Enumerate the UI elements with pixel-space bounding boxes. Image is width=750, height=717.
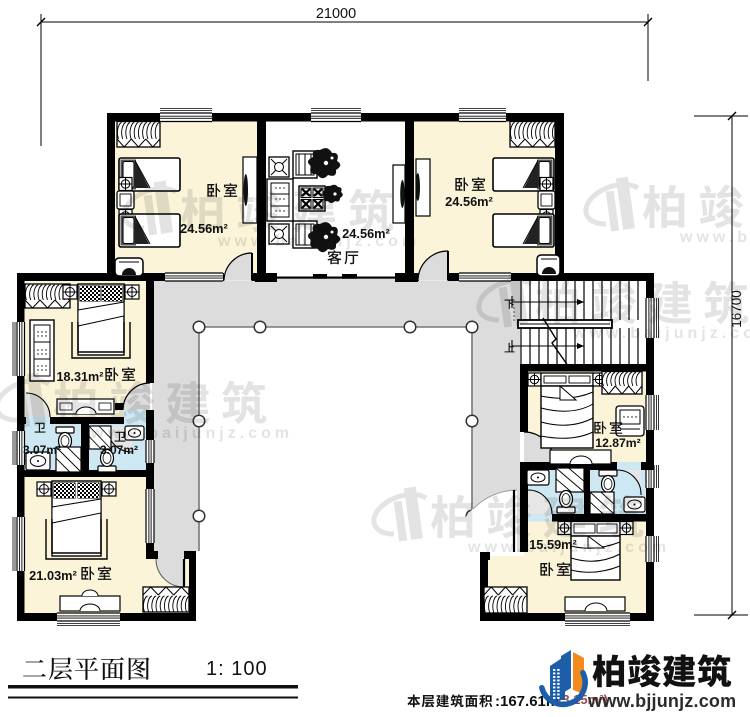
svg-text:www.baijunjz.com: www.baijunjz.com <box>467 539 670 556</box>
svg-text:3.07m²: 3.07m² <box>100 443 138 457</box>
svg-text:3.07m²: 3.07m² <box>23 443 61 457</box>
svg-text:www.baijunjz.com: www.baijunjz.com <box>679 229 750 246</box>
svg-text:www.baijunjz.com: www.baijunjz.com <box>90 425 293 442</box>
svg-text:1: 100: 1: 100 <box>206 658 268 680</box>
svg-text:21000: 21000 <box>316 6 356 22</box>
svg-text:www.baijunjz.com: www.baijunjz.com <box>217 233 420 250</box>
svg-text:www.bjjunjz.com: www.bjjunjz.com <box>587 691 736 711</box>
svg-text:24.56m²: 24.56m² <box>445 194 493 209</box>
svg-text:21.03m²: 21.03m² <box>29 568 77 583</box>
svg-text:www.baijunjz.com: www.baijunjz.com <box>572 325 750 342</box>
svg-text:12.87m²: 12.87m² <box>595 436 640 450</box>
